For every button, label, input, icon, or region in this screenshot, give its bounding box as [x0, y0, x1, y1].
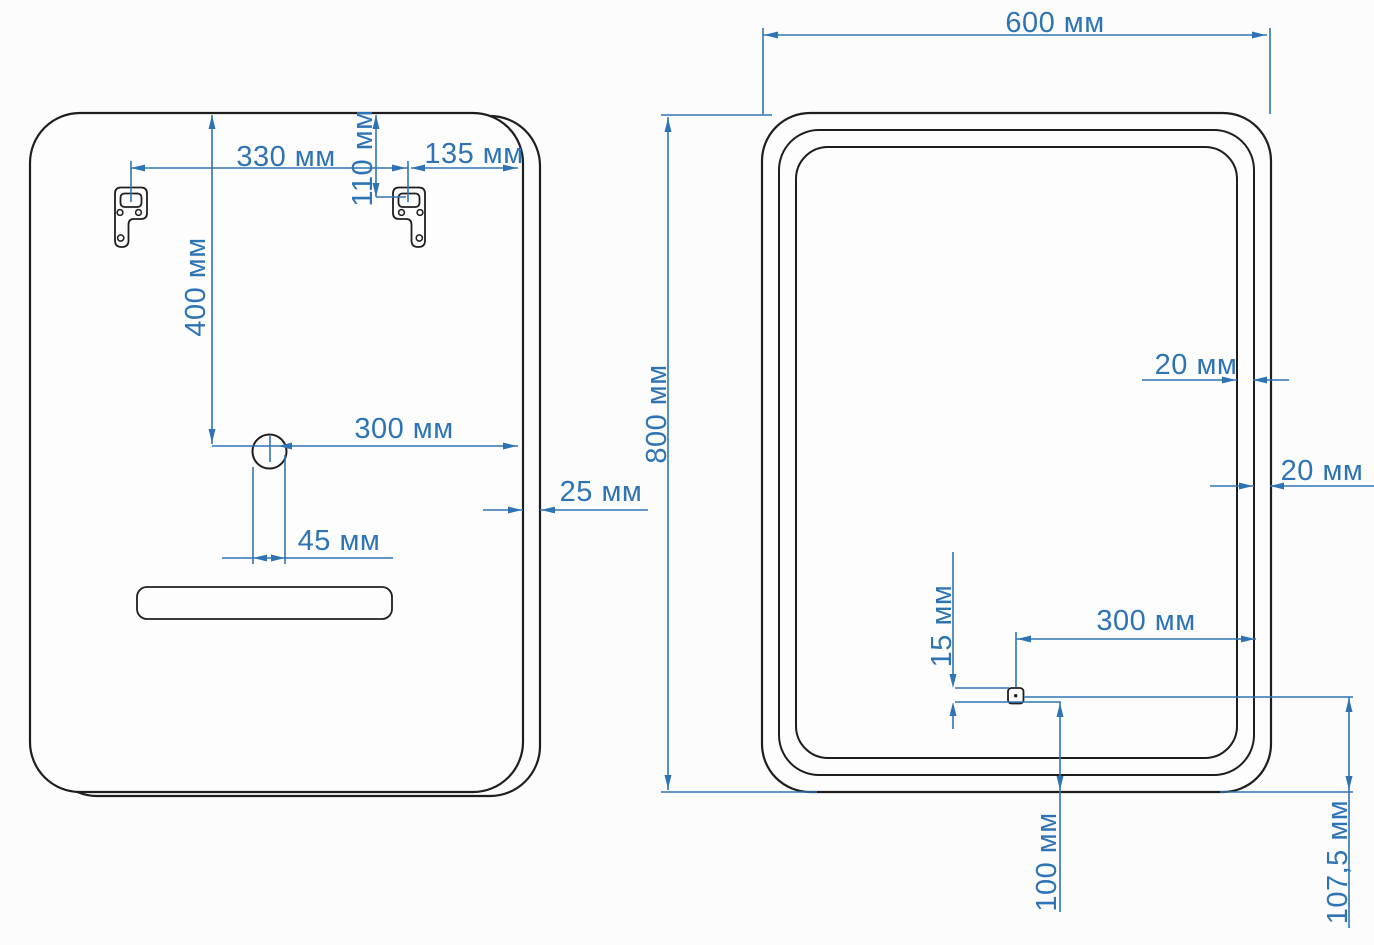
dim-label-100: 100 мм [1031, 812, 1063, 911]
dim-label-20-lower: 20 мм [1281, 455, 1364, 487]
dim-label-135: 135 мм [424, 138, 523, 170]
technical-drawing-canvas: 330 мм 135 мм 110 мм 400 мм 300 мм 45 мм… [0, 0, 1374, 945]
dim-label-45: 45 мм [298, 525, 381, 557]
dim-label-107-5: 107,5 мм [1322, 800, 1354, 925]
technical-drawing-page: 330 мм 135 мм 110 мм 400 мм 300 мм 45 мм… [0, 0, 1374, 945]
dim-label-800: 800 мм [641, 364, 673, 463]
dim-label-330: 330 мм [236, 141, 335, 173]
dim-label-20-upper: 20 мм [1155, 349, 1238, 381]
dim-label-300-front: 300 мм [1096, 605, 1195, 637]
dim-label-300-back: 300 мм [354, 413, 453, 445]
dim-label-15: 15 мм [926, 585, 958, 668]
dim-label-25: 25 мм [560, 476, 643, 508]
mirror-back-view [30, 113, 540, 796]
mirror-back-outline [30, 113, 523, 792]
touch-sensor-dot [1014, 694, 1017, 697]
dim-label-110: 110 мм [347, 109, 379, 206]
dim-label-600: 600 мм [1005, 7, 1104, 39]
mirror-front-view [762, 113, 1271, 792]
dim-label-400: 400 мм [180, 237, 212, 336]
